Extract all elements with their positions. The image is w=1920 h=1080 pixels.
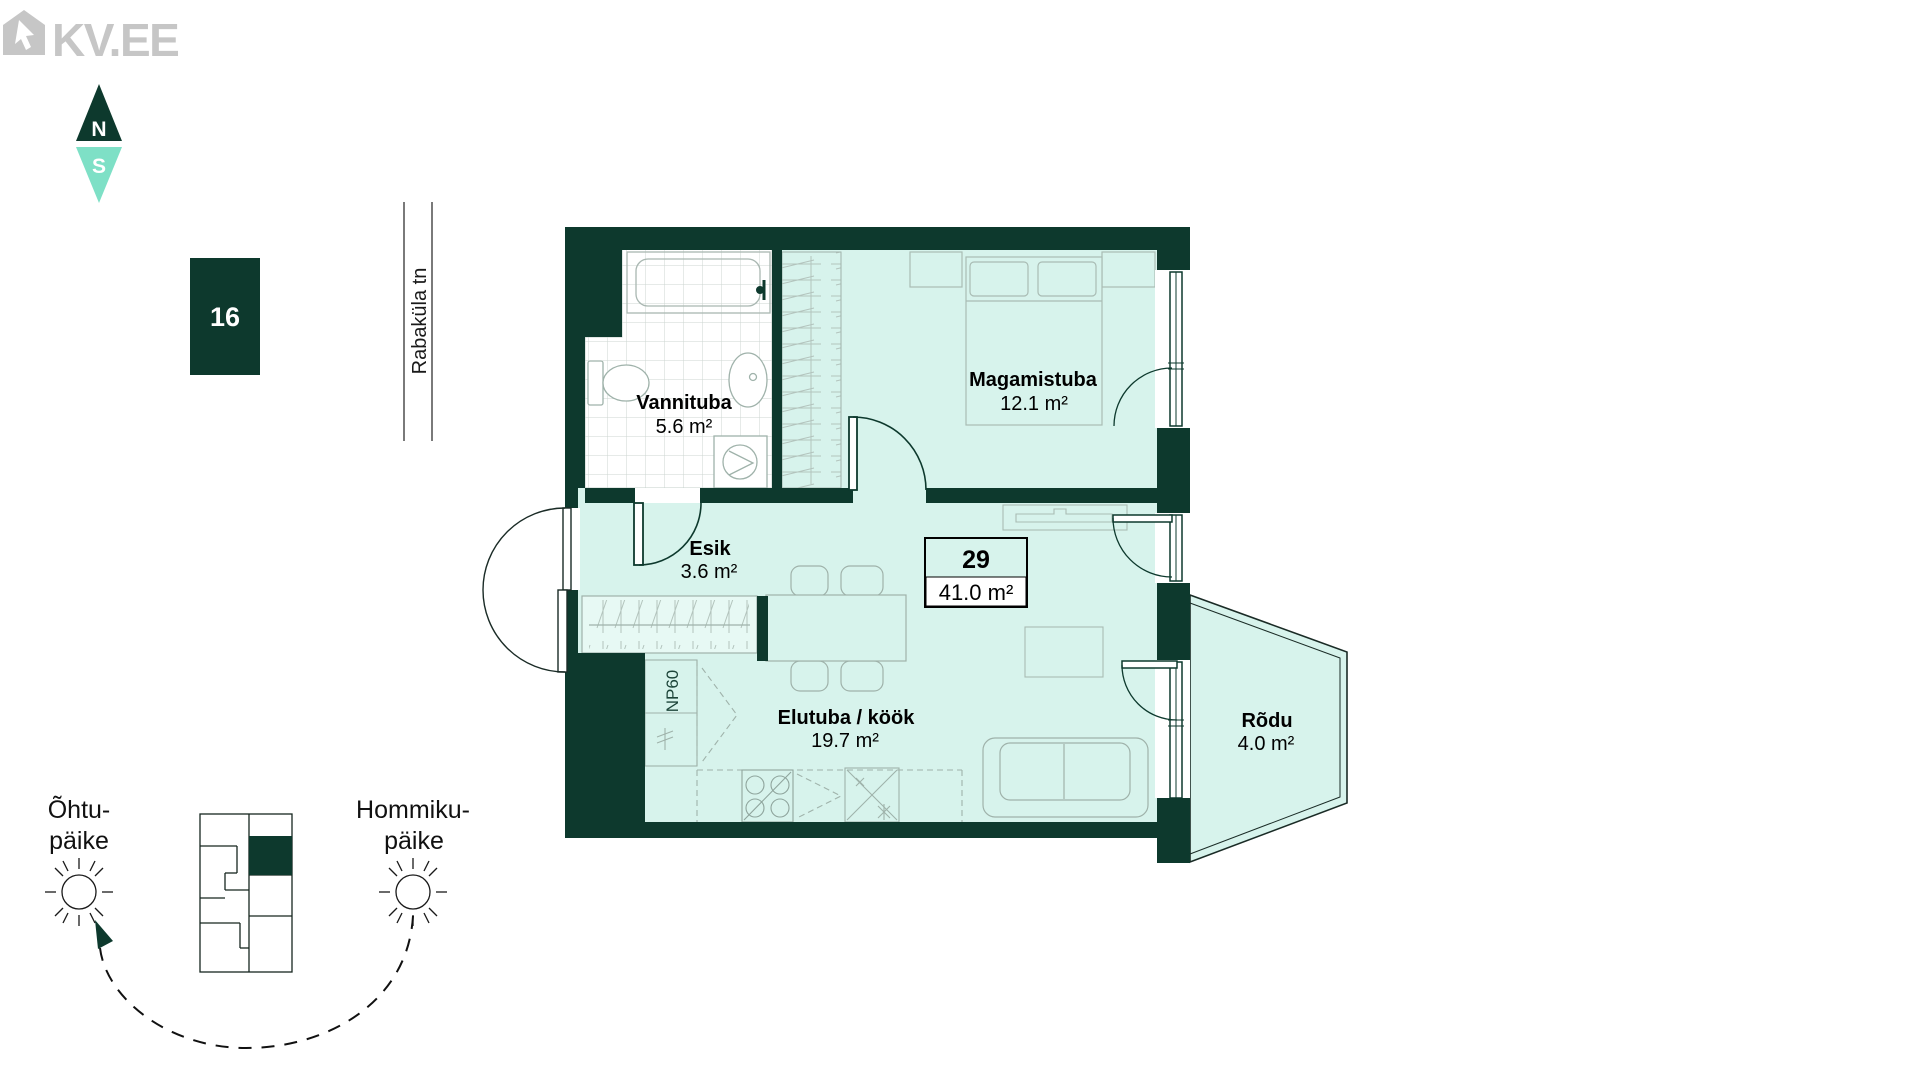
room-area-esik: 3.6 m² <box>681 561 738 583</box>
highlighted-unit <box>249 836 292 875</box>
morning-sun-icon <box>379 858 447 926</box>
floorplan: 29 41.0 m² Vannituba 5.6 m² Magamistuba … <box>483 227 1347 863</box>
compass-south-label: S <box>92 155 106 178</box>
room-label-magamistuba: Magamistuba <box>969 369 1098 391</box>
building-footprint-diagram <box>200 814 292 972</box>
street-indicator: Rabaküla tn <box>404 202 432 441</box>
coffee-table <box>1025 627 1103 677</box>
compass: N S <box>76 84 122 203</box>
room-label-vannituba: Vannituba <box>636 392 732 414</box>
room-area-magamistuba: 12.1 m² <box>1000 393 1068 415</box>
apartment-info-box: 29 41.0 m² <box>925 538 1027 607</box>
compass-north-label: N <box>91 118 106 141</box>
evening-sun-label-line2: päike <box>49 827 109 855</box>
evening-sun-label-line1: Õhtu- <box>48 795 111 824</box>
sun-diagram: Õhtu- päike Hommiku- päike <box>45 795 470 1048</box>
kitchen-niche-label: NP60 <box>663 670 682 713</box>
bathroom-sink <box>729 353 767 407</box>
bedroom-wardrobe <box>782 252 841 488</box>
sofa <box>983 738 1148 817</box>
logo-text: KV.EE <box>52 14 178 66</box>
nightstand-left <box>910 252 962 287</box>
dining-table <box>766 595 906 661</box>
sun-path-arrowhead-icon <box>95 920 113 949</box>
street-name-label: Rabaküla tn <box>409 268 431 375</box>
morning-sun-label-line2: päike <box>384 827 444 855</box>
nightstand-right <box>1102 252 1155 287</box>
window-leaf <box>1113 515 1172 522</box>
hallway-closet <box>582 596 757 653</box>
room-label-rodu: Rõdu <box>1241 710 1292 732</box>
room-area-vannituba: 5.6 m² <box>656 416 713 438</box>
room-area-rodu: 4.0 m² <box>1238 733 1295 755</box>
kvee-logo: KV.EE <box>3 10 178 66</box>
morning-sun-label-line1: Hommiku- <box>356 796 470 824</box>
door-leaf <box>1122 661 1177 668</box>
room-label-elutuba: Elutuba / köök <box>778 707 916 729</box>
evening-sun-icon <box>45 858 113 926</box>
floorplan-page: KV.EE N S 16 Rabaküla tn <box>0 0 1920 1080</box>
room-area-elutuba: 19.7 m² <box>811 730 879 752</box>
washing-machine <box>714 436 767 488</box>
apartment-number: 29 <box>962 546 990 574</box>
floorplan-canvas: KV.EE N S 16 Rabaküla tn <box>0 0 1920 1080</box>
stack-badge-number: 16 <box>210 302 240 332</box>
room-label-esik: Esik <box>689 538 731 560</box>
door-swing-arc <box>483 508 565 672</box>
apartment-total-area: 41.0 m² <box>939 580 1014 605</box>
entrance-door <box>483 508 580 672</box>
stack-badge: 16 <box>190 258 260 375</box>
